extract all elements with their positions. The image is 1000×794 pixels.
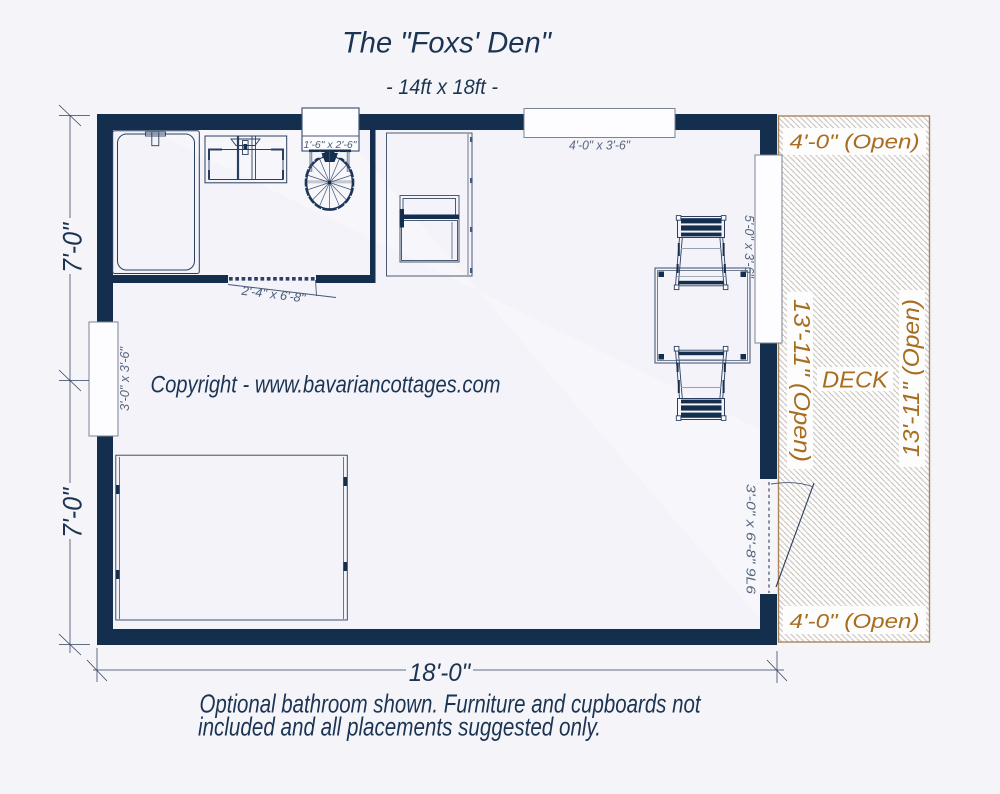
svg-text:included and all placements su: included and all placements suggested on… [198, 712, 601, 742]
svg-text:- 14ft x 18ft -: - 14ft x 18ft - [386, 75, 498, 99]
svg-text:1'-6" x 2'-6": 1'-6" x 2'-6" [304, 140, 358, 151]
svg-text:Copyright - www.bavariancottag: Copyright - www.bavariancottages.com [151, 372, 501, 399]
svg-text:13'-11" (Open): 13'-11" (Open) [898, 299, 924, 457]
svg-text:7'-0": 7'-0" [58, 487, 88, 538]
svg-text:DECK: DECK [822, 367, 889, 393]
svg-text:13'-11" (Open): 13'-11" (Open) [789, 299, 815, 462]
svg-text:18'-0": 18'-0" [409, 659, 472, 687]
svg-text:7'-0": 7'-0" [58, 222, 88, 273]
svg-text:4'-0" (Open): 4'-0" (Open) [790, 131, 920, 154]
svg-text:The "Foxs' Den": The "Foxs' Den" [342, 27, 552, 60]
svg-text:4'-0" (Open): 4'-0" (Open) [790, 610, 920, 633]
svg-text:4'-0" x 3'-6": 4'-0" x 3'-6" [569, 138, 631, 153]
svg-text:3'-0" x 6'-8" 9L6: 3'-0" x 6'-8" 9L6 [744, 484, 758, 594]
svg-text:5'-0" x 3'-6": 5'-0" x 3'-6" [742, 215, 756, 279]
svg-text:3'-0" x 3'-6": 3'-0" x 3'-6" [118, 346, 132, 411]
